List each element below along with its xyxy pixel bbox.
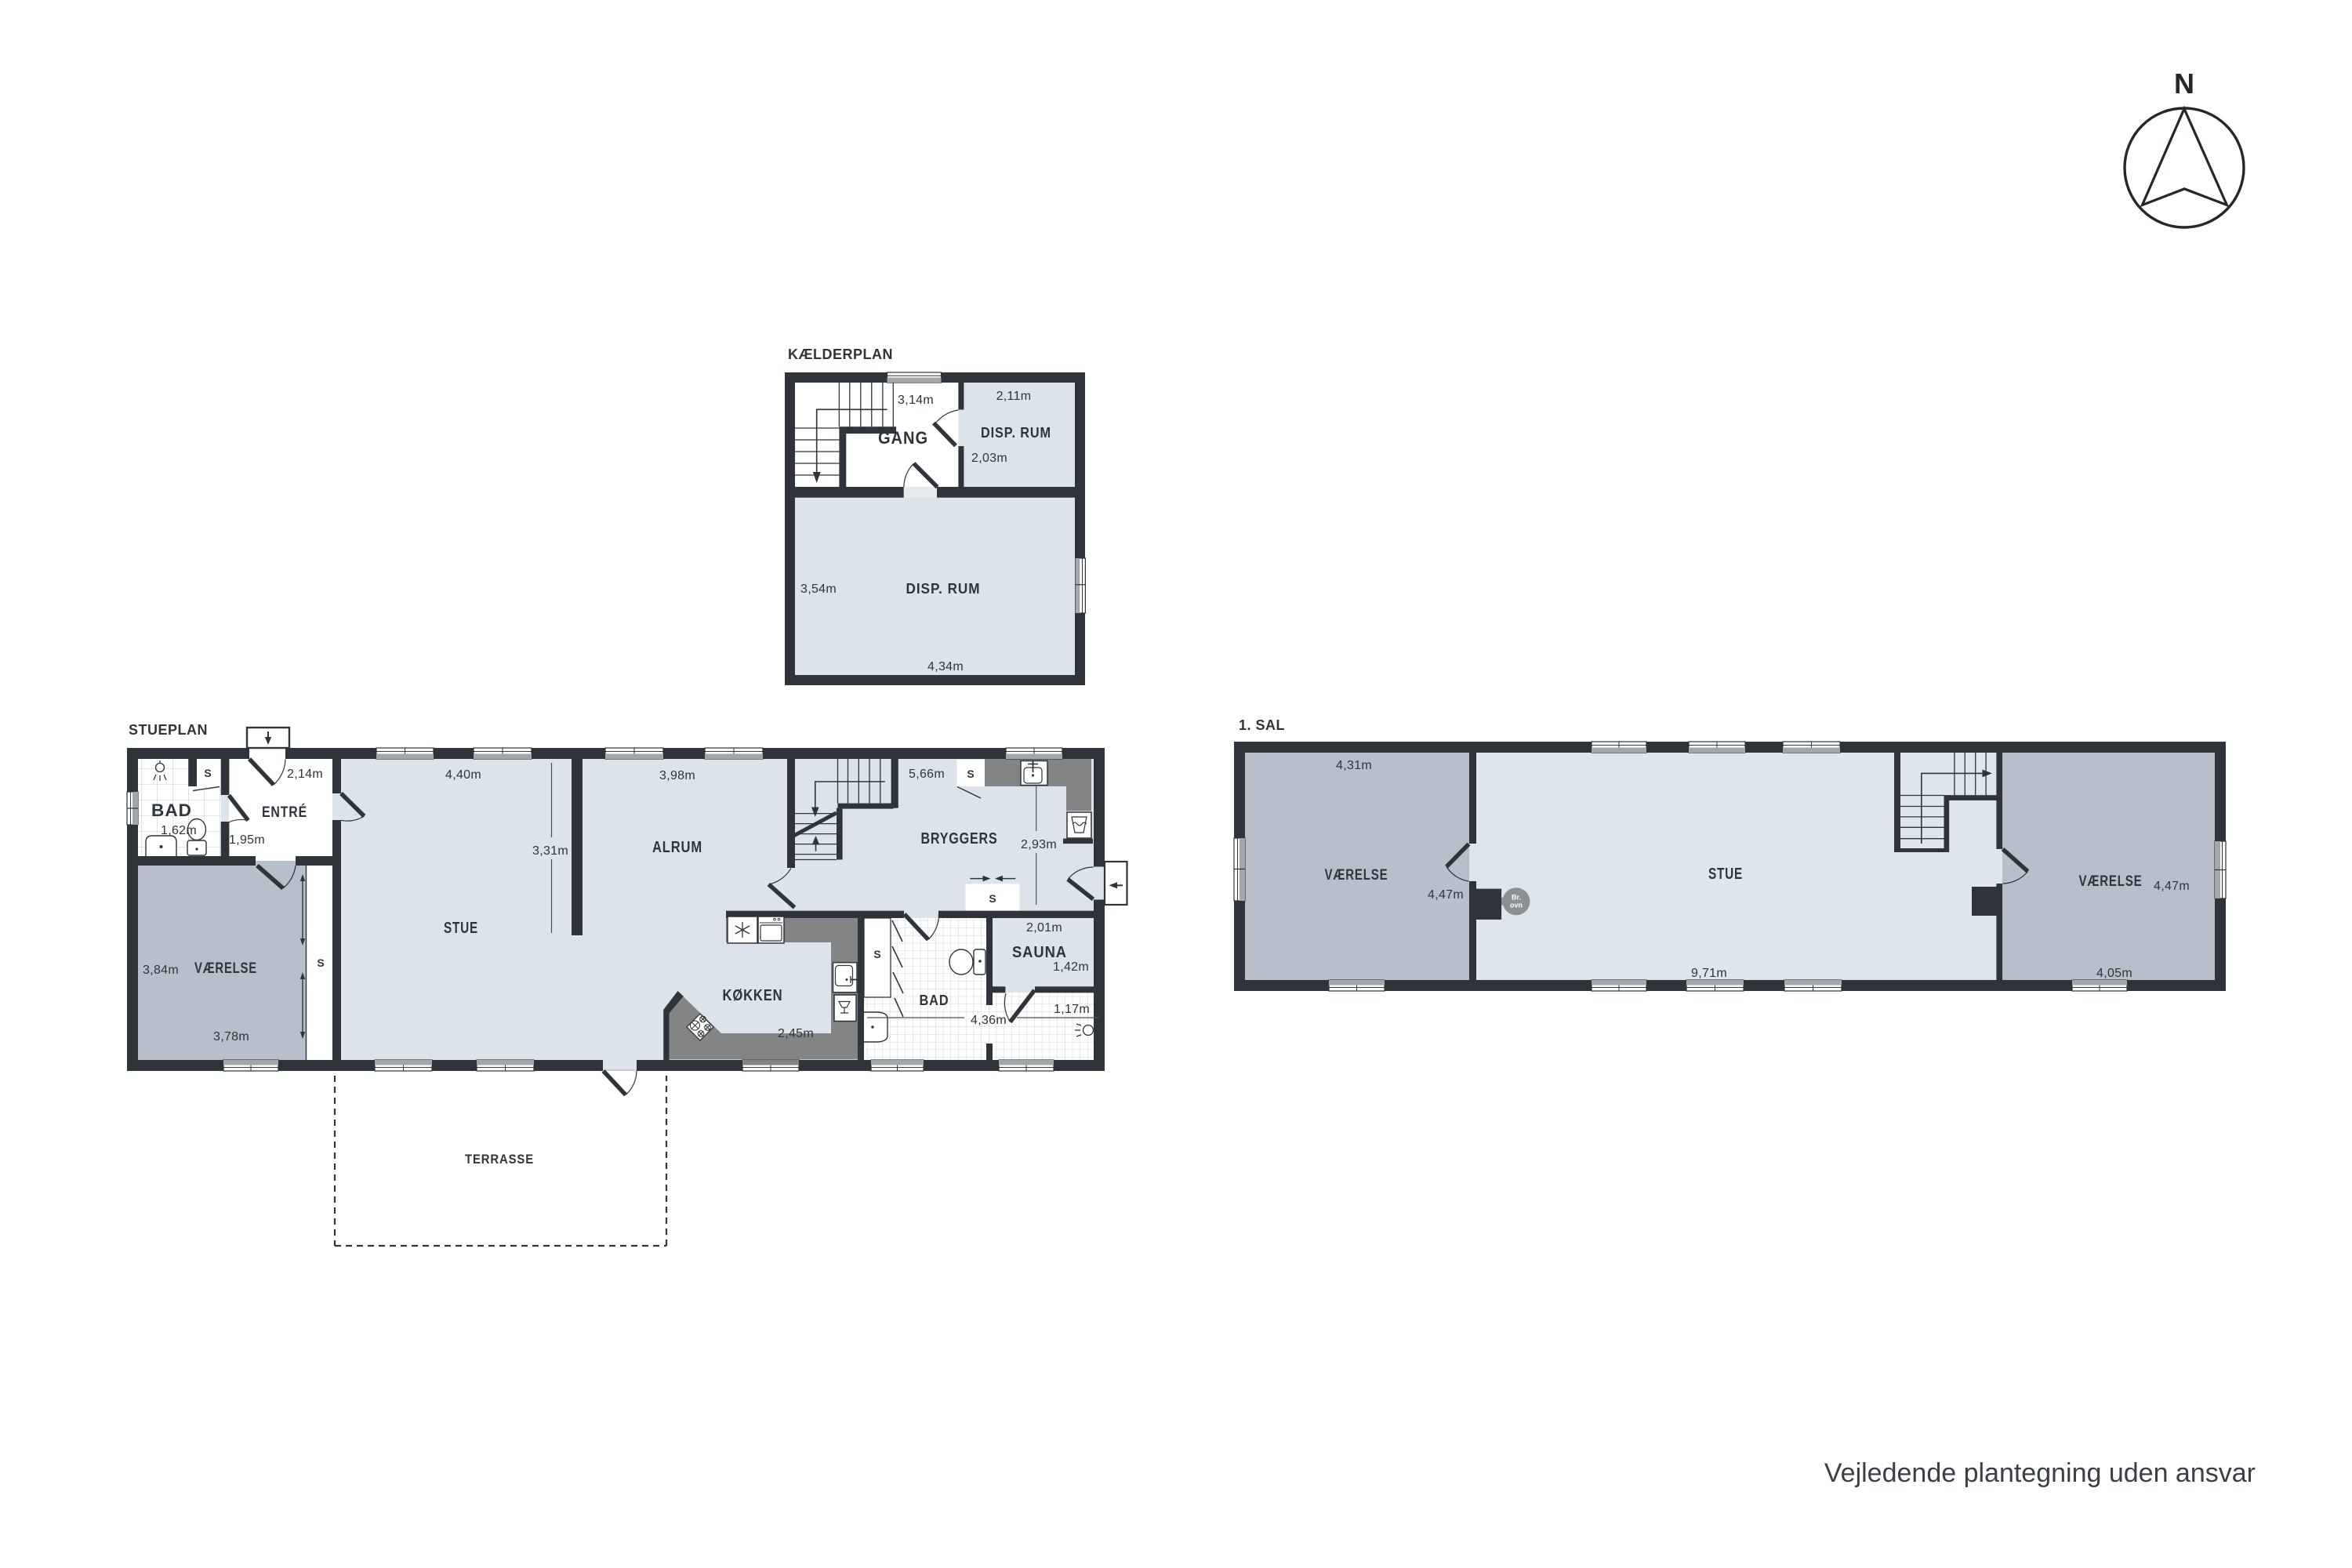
svg-text:S: S <box>873 948 880 960</box>
svg-text:3,98m: 3,98m <box>659 769 695 782</box>
svg-text:KØKKEN: KØKKEN <box>723 987 783 1004</box>
svg-text:2,01m: 2,01m <box>1026 921 1062 935</box>
svg-text:1,17m: 1,17m <box>1054 1003 1090 1016</box>
svg-text:3,78m: 3,78m <box>213 1030 249 1044</box>
svg-text:ENTRÉ: ENTRÉ <box>262 804 307 821</box>
svg-text:STUE: STUE <box>444 920 478 937</box>
svg-text:2,14m: 2,14m <box>287 768 323 781</box>
svg-text:Br.: Br. <box>1512 894 1521 902</box>
svg-text:ovn: ovn <box>1510 902 1523 909</box>
svg-text:STUE: STUE <box>1708 866 1743 883</box>
svg-text:DISP. RUM: DISP. RUM <box>981 425 1051 441</box>
svg-text:2,11m: 2,11m <box>996 390 1032 403</box>
svg-text:1,62m: 1,62m <box>161 824 197 837</box>
svg-text:1,42m: 1,42m <box>1053 960 1089 974</box>
svg-text:4,31m: 4,31m <box>1336 759 1372 772</box>
svg-text:BAD: BAD <box>920 993 949 1008</box>
svg-text:ALRUM: ALRUM <box>652 839 702 856</box>
svg-text:SAUNA: SAUNA <box>1012 944 1067 961</box>
svg-text:KÆLDERPLAN: KÆLDERPLAN <box>788 347 893 362</box>
svg-text:4,47m: 4,47m <box>1428 888 1464 902</box>
svg-text:4,34m: 4,34m <box>927 660 964 673</box>
svg-text:1,95m: 1,95m <box>229 833 265 847</box>
svg-text:TERRASSE: TERRASSE <box>465 1152 534 1167</box>
svg-text:4,47m: 4,47m <box>2154 880 2190 893</box>
svg-text:Vejledende plantegning uden an: Vejledende plantegning uden ansvar <box>1824 1458 2256 1488</box>
svg-text:1. SAL: 1. SAL <box>1239 717 1285 733</box>
svg-text:VÆRELSE: VÆRELSE <box>2079 873 2143 890</box>
svg-text:STUEPLAN: STUEPLAN <box>129 722 208 738</box>
svg-text:S: S <box>204 767 211 779</box>
svg-text:4,36m: 4,36m <box>971 1014 1007 1027</box>
svg-text:BRYGGERS: BRYGGERS <box>921 830 998 848</box>
svg-text:N: N <box>2174 67 2194 100</box>
svg-text:VÆRELSE: VÆRELSE <box>194 960 257 977</box>
svg-text:S: S <box>989 892 996 905</box>
svg-text:S: S <box>967 768 974 780</box>
svg-text:S: S <box>317 956 324 969</box>
svg-text:2,03m: 2,03m <box>971 452 1007 465</box>
svg-text:DISP. RUM: DISP. RUM <box>906 581 981 597</box>
svg-text:9,71m: 9,71m <box>1691 967 1727 980</box>
svg-text:3,54m: 3,54m <box>800 583 837 596</box>
svg-text:3,31m: 3,31m <box>532 844 568 858</box>
svg-text:VÆRELSE: VÆRELSE <box>1325 867 1388 884</box>
svg-text:GANG: GANG <box>878 428 928 448</box>
svg-text:3,84m: 3,84m <box>143 964 179 977</box>
svg-text:2,45m: 2,45m <box>778 1027 814 1040</box>
svg-text:5,66m: 5,66m <box>909 768 945 781</box>
svg-text:2,93m: 2,93m <box>1021 838 1057 851</box>
svg-text:4,40m: 4,40m <box>445 768 481 782</box>
svg-text:BAD: BAD <box>151 800 192 820</box>
svg-text:3,14m: 3,14m <box>898 394 934 407</box>
svg-text:4,05m: 4,05m <box>2096 967 2132 980</box>
